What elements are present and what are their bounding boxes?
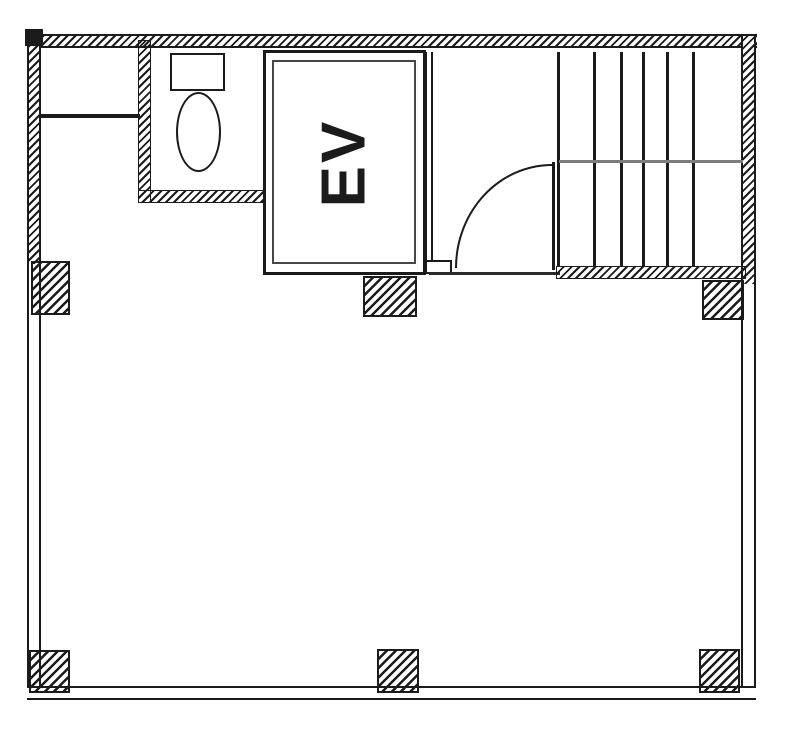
column-mid-right	[702, 280, 744, 320]
column-center	[363, 276, 417, 317]
column-bottom-center	[377, 649, 419, 693]
stair-landing-line	[559, 160, 743, 163]
stair-bottom-wall	[556, 266, 746, 279]
column-mid-left	[31, 261, 70, 315]
column-bottom-left	[29, 650, 70, 693]
floor-plan: EV	[0, 0, 787, 734]
stair-treads	[0, 0, 787, 734]
column-bottom-right	[699, 649, 740, 693]
